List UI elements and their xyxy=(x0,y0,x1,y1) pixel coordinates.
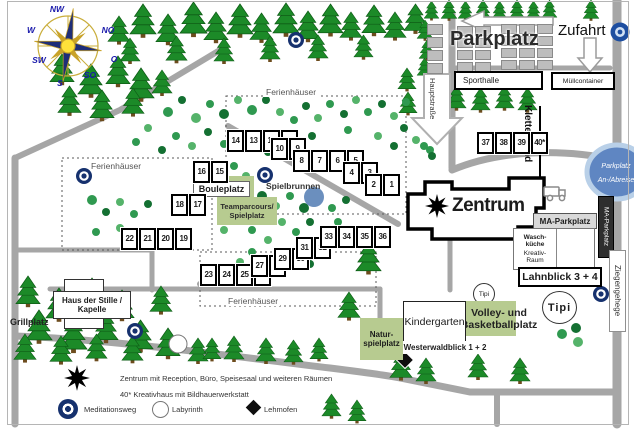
parkplatz-label: Parkplatz xyxy=(450,28,560,51)
house-number: 22 xyxy=(121,228,138,250)
house-number: 18 xyxy=(171,194,188,216)
kindergarten-building: Kindergarten xyxy=(403,301,466,343)
house-group: 21 xyxy=(364,173,401,197)
house-number: 38 xyxy=(495,132,512,154)
house-number: 20 xyxy=(157,228,174,250)
grillplatz-label: Grillplatz xyxy=(10,317,49,327)
lahnblick-building: Lahnblick 3 + 4 xyxy=(518,267,602,287)
legend-lehmofen-text: Lehmofen xyxy=(264,405,297,414)
legend-zentrum-text: Zentrum mit Reception, Büro, Speisesaal … xyxy=(120,374,540,383)
house-number: 29 xyxy=(274,248,291,270)
compass-w: W xyxy=(27,25,36,35)
ziegengehege-label: Ziegengehege xyxy=(609,250,626,332)
muellcontainer-building: Müllcontainer xyxy=(551,72,615,90)
zufahrt-sign-icon xyxy=(611,23,630,42)
house-number: 31 xyxy=(296,237,313,259)
legend-zentrum-star-icon xyxy=(63,364,91,392)
waschkueche-building: Wasch-küche Kreativ-Raum xyxy=(513,228,595,270)
zufahrt-label: Zufahrt xyxy=(558,22,612,39)
legend-labyrinth-text: Labyrinth xyxy=(172,405,203,414)
compass-nw: NW xyxy=(50,4,65,14)
house-group: 37383940* xyxy=(476,131,549,155)
zentrum-star-icon xyxy=(425,194,449,218)
house-number: 34 xyxy=(338,226,355,248)
house-group: 1615 xyxy=(192,160,229,184)
sporthalle-label: Sporthalle xyxy=(463,76,499,85)
svg-text:Parkplatz: Parkplatz xyxy=(601,163,631,170)
kreativraum-label: Kreativ-Raum xyxy=(524,250,546,264)
kindergarten-label: Kindergarten xyxy=(404,316,464,328)
svg-text:An-/Abreise: An-/Abreise xyxy=(597,177,634,184)
meditationsweg-marker-icon xyxy=(593,286,609,302)
ferienhaeuser-label-bottom: Ferienhäuser xyxy=(226,296,280,306)
house-number: 40* xyxy=(531,132,548,154)
lahnblick-label: Lahnblick 3 + 4 xyxy=(522,271,598,283)
truck-icon xyxy=(544,187,565,201)
tipi-big-label: Tipi xyxy=(548,302,571,314)
parking-stalls-left xyxy=(427,24,443,74)
legend-labyrinth-icon xyxy=(152,401,169,418)
muellcontainer-label: Müllcontainer xyxy=(563,78,603,85)
haus-der-stille-label: Haus der Stille /Kapelle xyxy=(53,291,131,319)
legend-kreativhaus-text: 40* Kreativhaus mit Bildhauerwerkstatt xyxy=(120,390,440,399)
house-group: 33343536 xyxy=(319,225,392,249)
house-number: 2 xyxy=(365,174,382,196)
house-number: 13 xyxy=(245,130,262,152)
house-number: 27 xyxy=(251,255,268,277)
house-number: 33 xyxy=(320,226,337,248)
tipi-big: Tipi xyxy=(542,291,577,324)
compass-so: SO xyxy=(84,70,97,80)
house-number: 16 xyxy=(193,161,210,183)
volleyball-label: Volley- undBasketballplatz xyxy=(453,303,545,335)
ma-parkplatz-sign-vertical: MA-Parkplatz xyxy=(598,196,614,258)
house-number: 17 xyxy=(189,194,206,216)
house-number: 14 xyxy=(227,130,244,152)
house-number: 39 xyxy=(513,132,530,154)
house-number: 37 xyxy=(477,132,494,154)
labyrinth-marker-icon xyxy=(169,335,187,353)
house-number: 4 xyxy=(343,162,360,184)
spielbrunnen-label: Spielbrunnen xyxy=(266,181,320,191)
house-number: 15 xyxy=(211,161,228,183)
compass-sw: SW xyxy=(32,55,47,65)
hauptstrasse-label: Hauptstraße xyxy=(428,78,437,148)
compass-s: S xyxy=(57,78,63,88)
house-number: 10 xyxy=(271,138,288,160)
waschkueche-label: Wasch-küche xyxy=(524,234,547,248)
teamparcours-area: Teamparcours/Spielplatz xyxy=(217,197,277,225)
meditationsweg-marker-icon xyxy=(288,32,304,48)
ma-parkplatz-text: MA-Parkplatz xyxy=(540,217,591,226)
naturspielplatz-area: Natur-spielplatz xyxy=(360,318,403,360)
compass-no: NO xyxy=(102,25,115,35)
compass-rose-icon: NW W NO O SW SO S xyxy=(27,4,118,88)
westerwaldblick-label: Westerwaldblick 1 + 2 xyxy=(400,341,490,354)
ferienhaeuser-label-top: Ferienhäuser xyxy=(263,87,319,97)
house-group: 1817 xyxy=(170,193,207,217)
sporthalle-building: Sporthalle xyxy=(454,71,543,90)
site-map: Parkplatz An-/Abreise xyxy=(0,0,634,433)
house-number: 19 xyxy=(175,228,192,250)
tipi-small-label: Tipi xyxy=(479,291,489,298)
legend-meditationsweg-icon xyxy=(58,399,78,419)
house-number: 21 xyxy=(139,228,156,250)
compass-o: O xyxy=(111,54,118,64)
house-number: 7 xyxy=(311,150,328,172)
house-group: 22212019 xyxy=(120,227,193,251)
house-number: 36 xyxy=(374,226,391,248)
house-number: 35 xyxy=(356,226,373,248)
ma-parkplatz-label: MA-Parkplatz xyxy=(533,213,597,229)
house-number: 23 xyxy=(200,264,217,286)
ferienhaeuser-label-left: Ferienhäuser xyxy=(91,161,141,171)
house-number: 24 xyxy=(218,264,235,286)
house-number: 8 xyxy=(293,150,310,172)
anreise-parkplatz-badge: Parkplatz An-/Abreise xyxy=(587,145,634,199)
meditationsweg-marker-icon xyxy=(76,168,92,184)
meditationsweg-marker-icon xyxy=(127,323,143,339)
legend-meditationsweg-text: Meditationsweg xyxy=(84,405,136,414)
zentrum-label: Zentrum xyxy=(452,195,538,217)
house-number: 1 xyxy=(383,174,400,196)
